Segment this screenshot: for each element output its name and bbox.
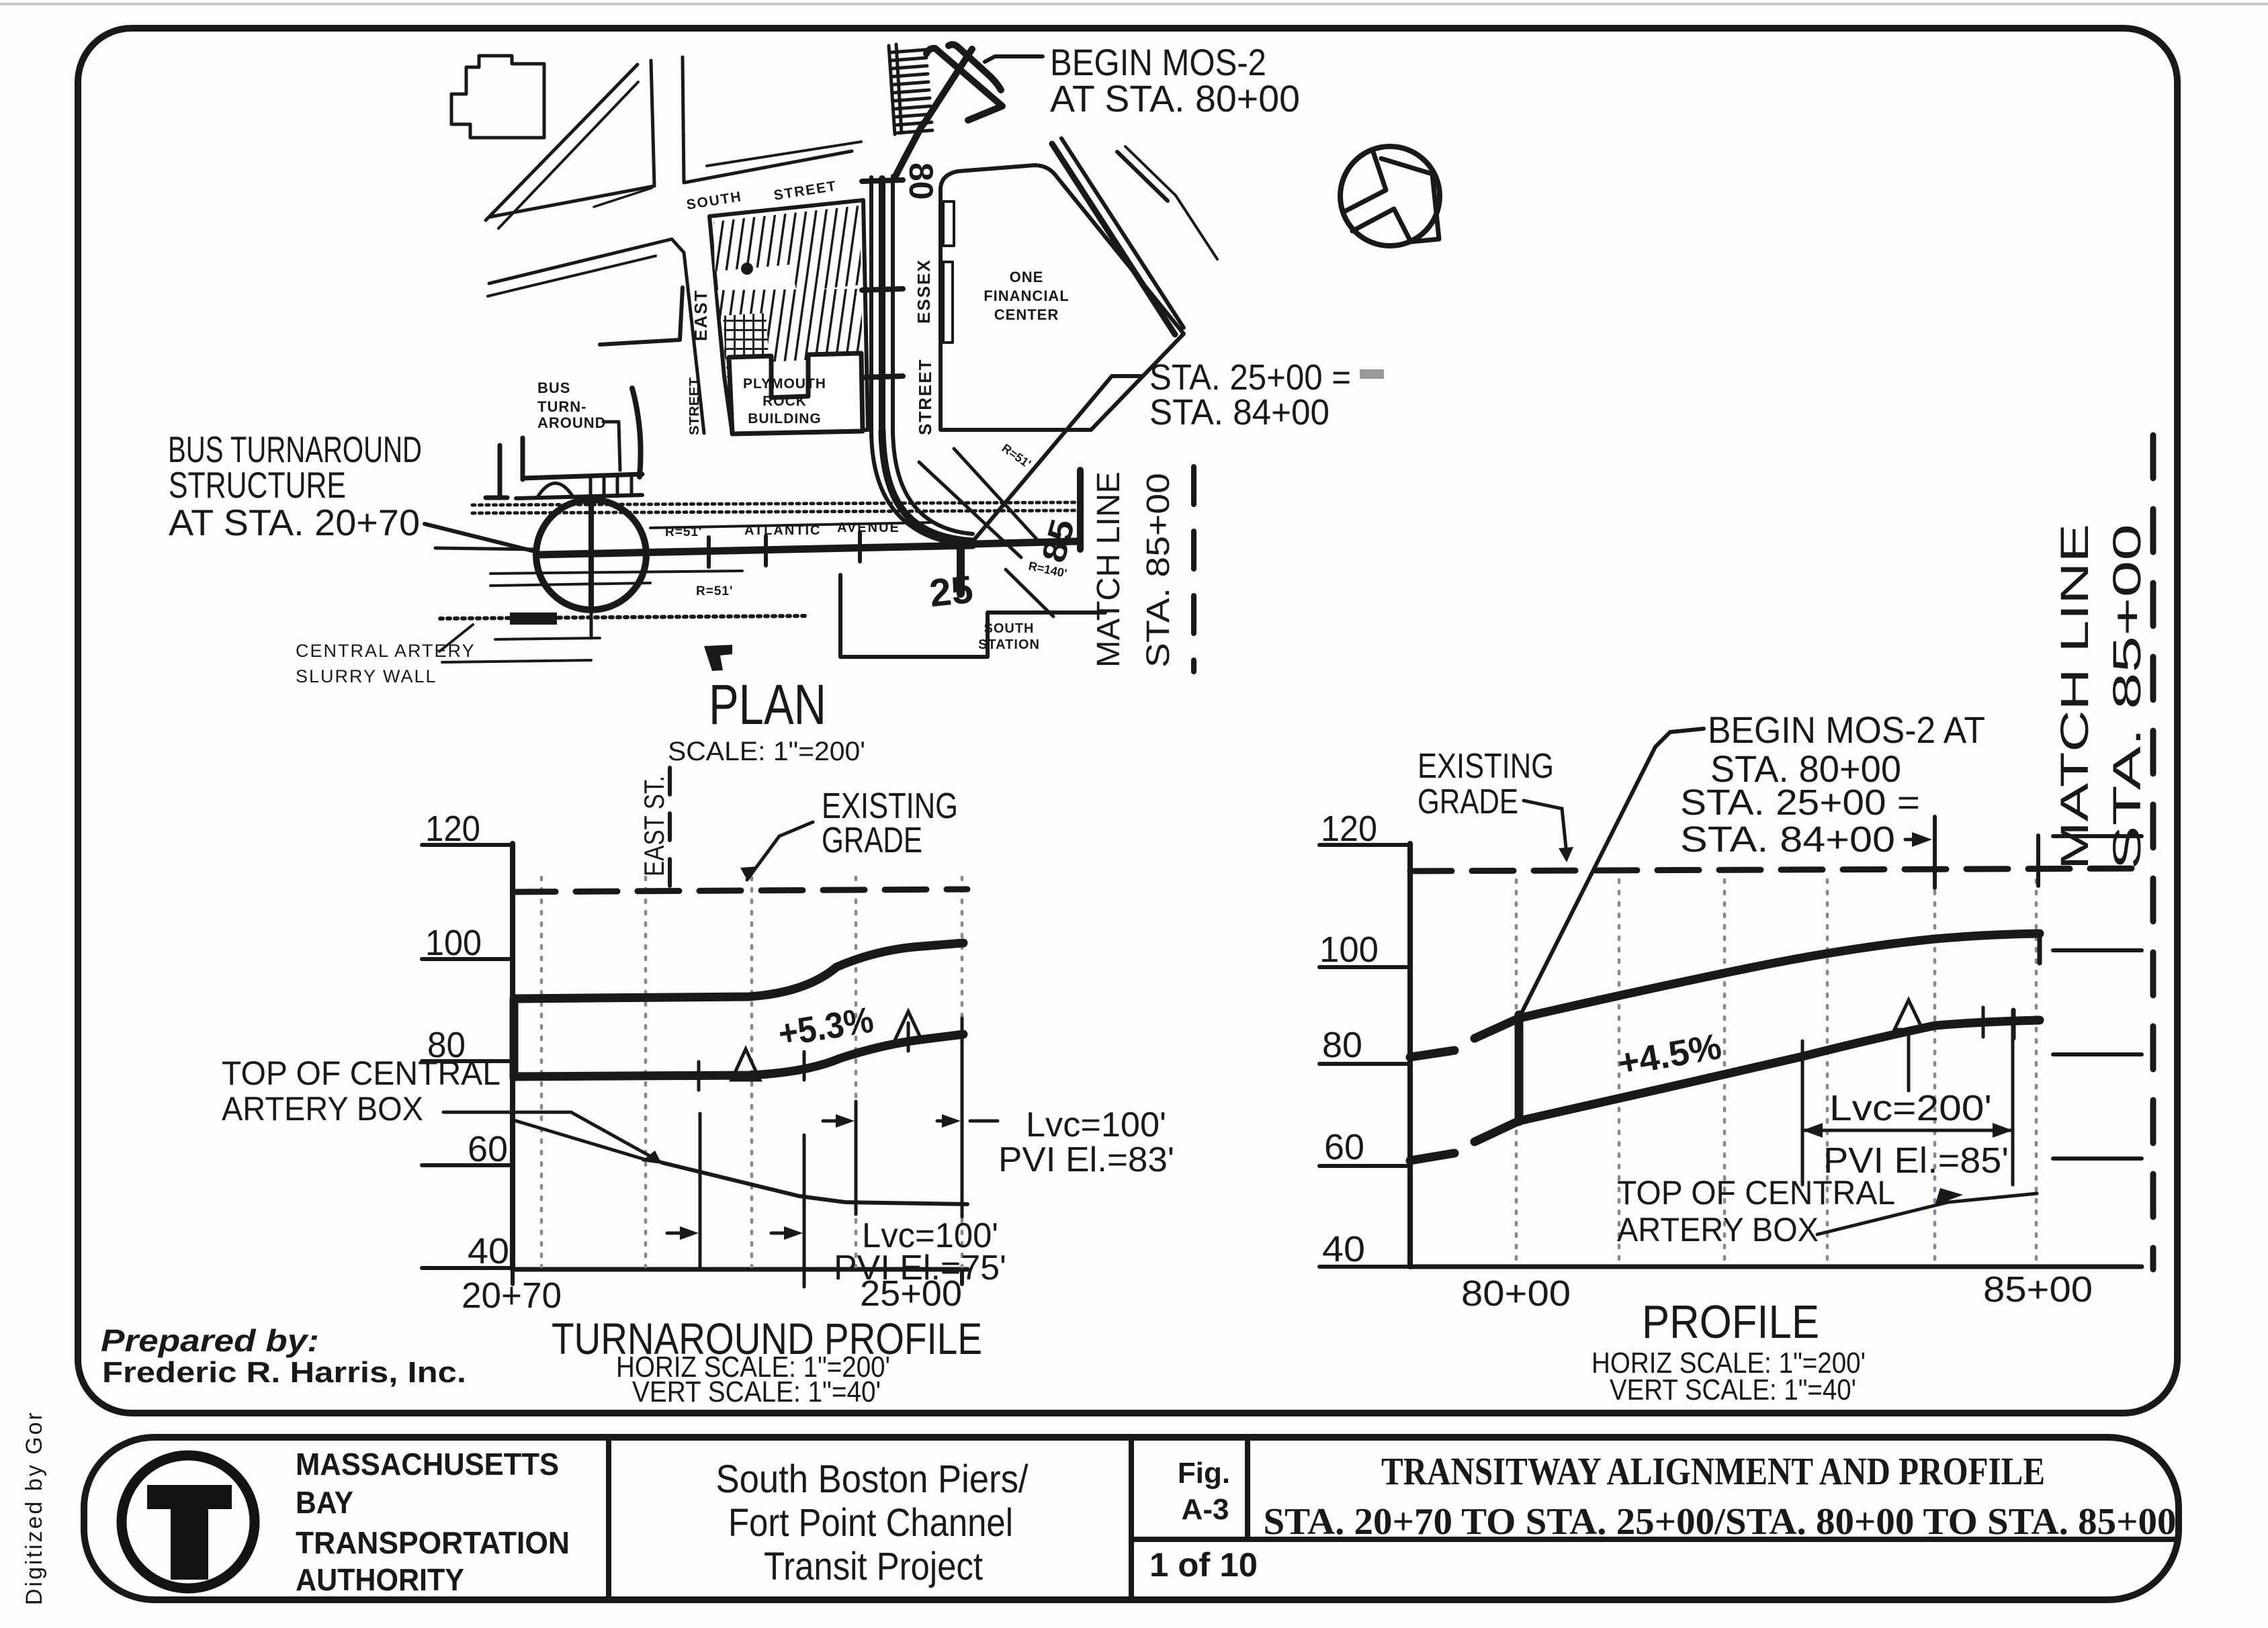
svg-text:MATCH LINE: MATCH LINE: [1091, 471, 1127, 668]
svg-text:GRADE: GRADE: [822, 820, 922, 860]
svg-text:PLYMOUTH: PLYMOUTH: [743, 376, 826, 392]
svg-text:PROFILE: PROFILE: [1642, 1296, 1819, 1348]
svg-text:85+00: 85+00: [1983, 1269, 2093, 1310]
svg-text:CENTER: CENTER: [994, 306, 1059, 323]
svg-text:STA. 20+70 TO STA. 25+00/STA.: STA. 20+70 TO STA. 25+00/STA. 80+00 TO S…: [1264, 1501, 2177, 1543]
svg-text:ONE: ONE: [1010, 269, 1044, 285]
svg-text:MASSACHUSETTS: MASSACHUSETTS: [296, 1447, 559, 1482]
svg-text:AT STA. 20+70: AT STA. 20+70: [169, 502, 420, 543]
svg-text:STA. 85+00: STA. 85+00: [1141, 473, 1176, 668]
svg-text:R=51': R=51': [696, 584, 733, 598]
svg-text:PLAN: PLAN: [709, 673, 826, 736]
svg-text:BEGIN MOS-2 AT: BEGIN MOS-2 AT: [1708, 709, 1985, 751]
svg-text:BUILDING: BUILDING: [748, 411, 822, 426]
svg-text:TOP OF CENTRAL: TOP OF CENTRAL: [1617, 1174, 1895, 1212]
svg-text:ATLANTIC: ATLANTIC: [744, 523, 822, 538]
svg-text:80: 80: [1322, 1025, 1362, 1065]
svg-text:20+70: 20+70: [462, 1275, 562, 1316]
svg-text:AT STA. 80+00: AT STA. 80+00: [1050, 77, 1300, 120]
svg-text:Digitized by Gor: Digitized by Gor: [21, 1410, 47, 1605]
svg-text:1 of 10: 1 of 10: [1149, 1546, 1258, 1584]
svg-text:STREET: STREET: [915, 358, 935, 435]
svg-text:PVI El.=75': PVI El.=75': [834, 1249, 1006, 1287]
svg-text:ESSEX: ESSEX: [914, 259, 934, 324]
svg-text:40: 40: [468, 1231, 509, 1271]
svg-text:80+00: 80+00: [1461, 1273, 1571, 1314]
svg-text:TOP OF CENTRAL: TOP OF CENTRAL: [222, 1054, 500, 1092]
svg-text:R=51': R=51': [665, 525, 702, 539]
svg-text:TURN-: TURN-: [537, 398, 586, 415]
svg-text:VERT SCALE: 1"=40': VERT SCALE: 1"=40': [632, 1375, 881, 1408]
svg-text:Frederic R. Harris, Inc.: Frederic R. Harris, Inc.: [102, 1356, 466, 1389]
svg-text:FINANCIAL: FINANCIAL: [984, 287, 1070, 304]
svg-text:SOUTH: SOUTH: [984, 621, 1035, 636]
svg-text:STRUCTURE: STRUCTURE: [169, 464, 346, 506]
svg-text:60: 60: [468, 1129, 508, 1169]
svg-text:AROUND: AROUND: [537, 414, 607, 431]
svg-text:80: 80: [902, 163, 940, 200]
svg-text:BAY: BAY: [296, 1485, 353, 1520]
svg-text:EAST: EAST: [691, 289, 711, 341]
svg-text:100: 100: [425, 923, 482, 963]
svg-text:EXISTING: EXISTING: [1417, 747, 1554, 786]
svg-text:TRANSPORTATION: TRANSPORTATION: [296, 1525, 570, 1560]
svg-text:ROCK: ROCK: [762, 394, 807, 409]
svg-text:TRANSITWAY ALIGNMENT AND PROFI: TRANSITWAY ALIGNMENT AND PROFILE: [1381, 1449, 2045, 1493]
svg-text:Fort Point Channel: Fort Point Channel: [728, 1501, 1013, 1545]
svg-text:ARTERY BOX: ARTERY BOX: [1617, 1211, 1819, 1249]
svg-text:Transit Project: Transit Project: [764, 1545, 983, 1588]
svg-text:Fig.: Fig.: [1178, 1457, 1230, 1490]
svg-text:South Boston Piers/: South Boston Piers/: [716, 1457, 1029, 1501]
svg-text:STA. 25+00 =: STA. 25+00 =: [1149, 357, 1351, 398]
svg-text:STA. 84+00: STA. 84+00: [1680, 819, 1895, 860]
svg-text:SLURRY WALL: SLURRY WALL: [296, 666, 437, 686]
svg-text:GRADE: GRADE: [1417, 782, 1518, 821]
svg-text:STA. 85+00: STA. 85+00: [2105, 524, 2149, 870]
svg-text:120: 120: [1321, 809, 1377, 849]
svg-text:60: 60: [1324, 1127, 1364, 1167]
svg-text:STATION: STATION: [978, 637, 1040, 652]
svg-text:ARTERY BOX: ARTERY BOX: [222, 1090, 423, 1128]
svg-text:STA. 25+00 =: STA. 25+00 =: [1680, 782, 1920, 823]
svg-text:120: 120: [425, 809, 480, 849]
svg-text:A-3: A-3: [1182, 1493, 1229, 1526]
svg-text:SCALE: 1"=200': SCALE: 1"=200': [668, 737, 865, 766]
svg-text:AVENUE: AVENUE: [837, 521, 900, 535]
svg-text:BUS: BUS: [537, 379, 570, 396]
svg-text:EAST ST.: EAST ST.: [638, 776, 670, 876]
svg-text:VERT SCALE: 1"=40': VERT SCALE: 1"=40': [1610, 1373, 1856, 1406]
svg-text:Lvc=100': Lvc=100': [1026, 1105, 1166, 1144]
svg-text:Lvc=200': Lvc=200': [1829, 1088, 1992, 1128]
svg-text:STREET: STREET: [687, 377, 702, 435]
svg-text:40: 40: [1322, 1229, 1365, 1269]
svg-text:STA. 84+00: STA. 84+00: [1149, 392, 1329, 433]
svg-text:25: 25: [927, 568, 975, 615]
svg-text:AUTHORITY: AUTHORITY: [296, 1562, 464, 1597]
svg-text:Prepared by:: Prepared by:: [101, 1323, 319, 1358]
svg-text:100: 100: [1319, 930, 1379, 970]
svg-text:MATCH LINE: MATCH LINE: [2053, 524, 2097, 870]
svg-text:PVI El.=83': PVI El.=83': [998, 1140, 1174, 1179]
